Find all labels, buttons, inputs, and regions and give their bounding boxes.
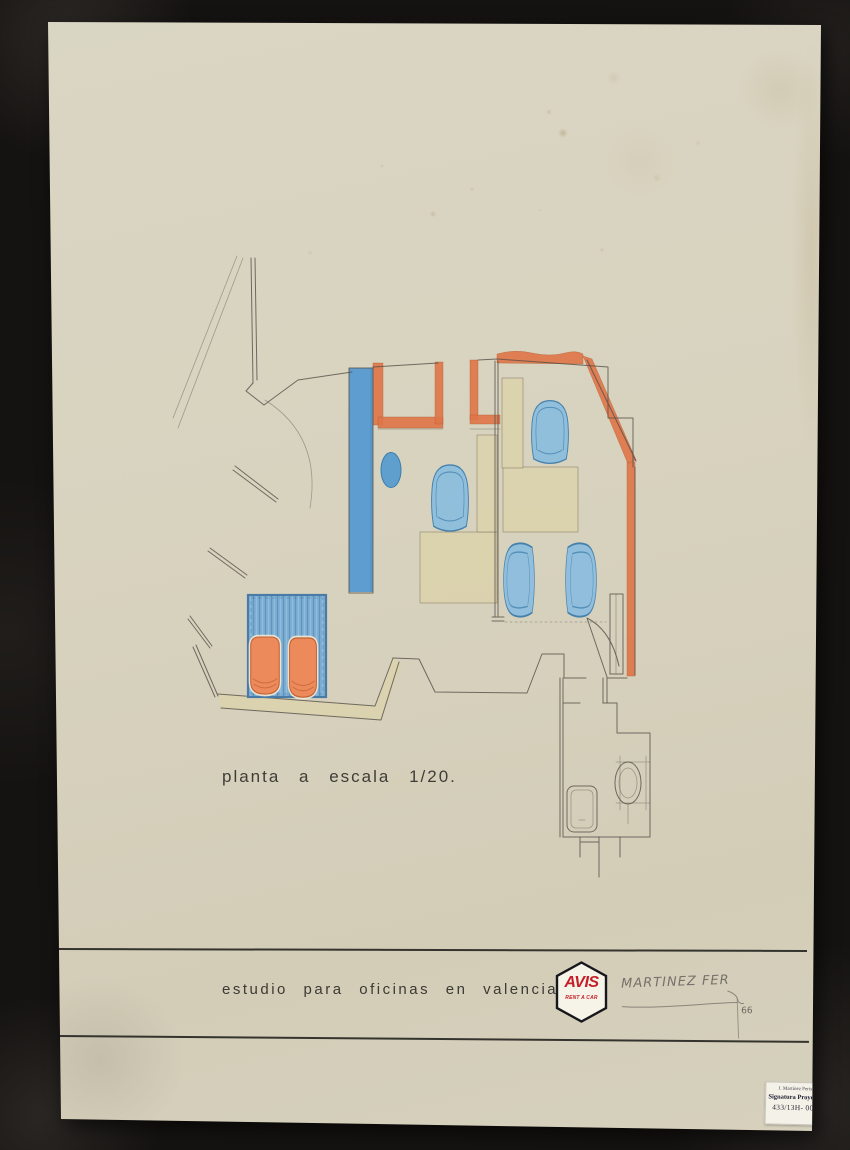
orange-diagonal-wall: [583, 356, 636, 464]
desk-left-room: [420, 532, 497, 603]
archive-author: J. Martínez Peris: [766, 1086, 824, 1092]
avis-hexagon-icon: [555, 961, 608, 1023]
cabinet-center: [477, 435, 497, 532]
entry-door-arc: [265, 400, 312, 508]
door-swing: [587, 618, 619, 677]
bathroom-walls: [560, 678, 650, 837]
avis-wordmark: AVIS: [555, 974, 608, 992]
avis-subtitle: RENT A CAR: [555, 995, 608, 1001]
side-table: [381, 453, 401, 488]
rug-area: [248, 595, 326, 697]
bathroom-fixtures: [567, 756, 650, 832]
blue-chair-top-room: [532, 401, 569, 464]
orange-right-wall: [627, 462, 635, 676]
drawing-board: planta a escala 1/20. estudio para ofici…: [0, 0, 850, 1150]
cabinet-top-right: [502, 378, 523, 468]
blue-chair-left-room: [432, 465, 469, 531]
blue-lounge-chair-left: [504, 543, 535, 616]
orange-armchair-left: [251, 637, 280, 694]
archive-title: Signatura Proyecto: [766, 1093, 824, 1101]
desk-right-room: [503, 467, 578, 532]
blue-lounge-chair-right: [566, 543, 597, 616]
signature-year: 66: [741, 1006, 753, 1016]
archive-number: 433/13H- 002: [766, 1102, 824, 1112]
radiator: [610, 594, 623, 674]
orange-armchair-right: [290, 638, 317, 697]
board-shadow-wrap: planta a escala 1/20. estudio para ofici…: [0, 0, 850, 1150]
plan-scale-label: planta a escala 1/20.: [222, 767, 457, 787]
signature-underline: [619, 988, 760, 1023]
blue-wall-strip: [349, 368, 373, 592]
avis-logo: AVIS RENT A CAR: [555, 961, 608, 1023]
floor-plan-drawing: [150, 250, 680, 980]
title-caption: estudio para oficinas en valencia de: [222, 981, 596, 998]
architect-signature: MARTINEZ FER 66: [617, 969, 774, 1046]
archive-sticker: J. Martínez Peris Signatura Proyecto 433…: [765, 1081, 826, 1125]
